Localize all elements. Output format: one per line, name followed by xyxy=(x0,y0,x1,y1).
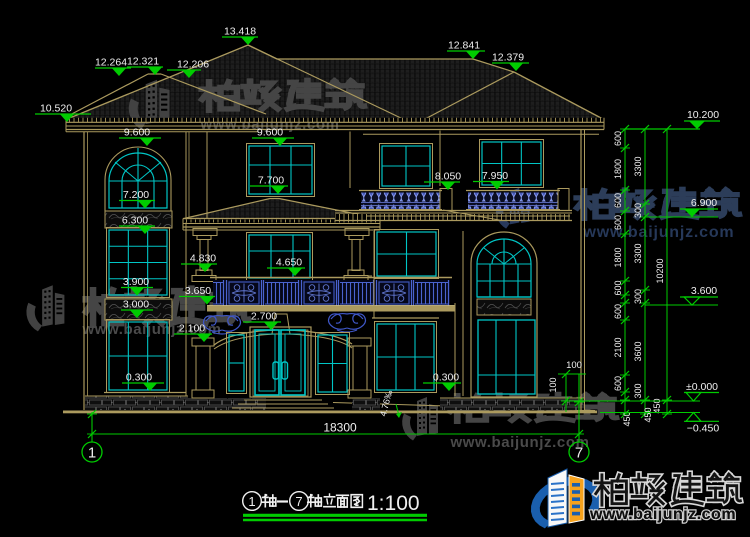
svg-text:12.379: 12.379 xyxy=(492,52,524,64)
svg-text:600: 600 xyxy=(613,280,623,295)
svg-text:9.600: 9.600 xyxy=(124,127,150,139)
svg-text:3.600: 3.600 xyxy=(691,285,717,297)
svg-text:0.300: 0.300 xyxy=(126,372,152,384)
svg-text:600: 600 xyxy=(613,215,623,230)
svg-text:2100: 2100 xyxy=(613,337,623,357)
svg-text:600: 600 xyxy=(613,304,623,319)
svg-text:6.300: 6.300 xyxy=(122,215,148,227)
svg-text:7.700: 7.700 xyxy=(258,175,284,187)
svg-text:12.321: 12.321 xyxy=(127,56,159,68)
svg-text:6.900: 6.900 xyxy=(691,197,717,209)
svg-text:−0.450: −0.450 xyxy=(687,423,720,435)
svg-text:600: 600 xyxy=(613,131,623,146)
svg-text:300: 300 xyxy=(633,203,643,218)
svg-text:3300: 3300 xyxy=(633,243,643,263)
svg-text:12.841: 12.841 xyxy=(448,40,480,52)
svg-text:www.baijunjz.com: www.baijunjz.com xyxy=(589,506,736,523)
svg-text:8.050: 8.050 xyxy=(435,171,461,183)
svg-text:10200: 10200 xyxy=(655,258,665,283)
svg-text:±0.000: ±0.000 xyxy=(686,381,718,393)
svg-text:600: 600 xyxy=(613,193,623,208)
svg-text:7.950: 7.950 xyxy=(482,170,508,182)
svg-text:7: 7 xyxy=(575,445,583,462)
svg-text:1800: 1800 xyxy=(613,159,623,179)
svg-text:10.200: 10.200 xyxy=(687,109,719,121)
svg-text:3300: 3300 xyxy=(633,156,643,176)
svg-text:10.520: 10.520 xyxy=(40,103,72,115)
svg-text:100: 100 xyxy=(566,360,582,371)
svg-text:13.418: 13.418 xyxy=(224,26,256,38)
svg-text:2.700: 2.700 xyxy=(251,311,277,323)
svg-text:12.264: 12.264 xyxy=(95,57,127,69)
svg-text:3.650: 3.650 xyxy=(185,285,211,297)
svg-text:9.600: 9.600 xyxy=(257,127,283,139)
svg-text:100: 100 xyxy=(548,377,558,392)
svg-text:450: 450 xyxy=(622,411,632,426)
svg-text:www.baijunjz.com: www.baijunjz.com xyxy=(449,434,589,451)
svg-text:7.200: 7.200 xyxy=(123,189,149,201)
svg-text:3.000: 3.000 xyxy=(123,299,149,311)
svg-text:2.100: 2.100 xyxy=(179,323,205,335)
svg-text:600: 600 xyxy=(613,376,623,391)
svg-text:3600: 3600 xyxy=(633,341,643,361)
svg-text:18300: 18300 xyxy=(323,421,357,435)
svg-text:1: 1 xyxy=(88,445,96,462)
svg-text:300: 300 xyxy=(633,383,643,398)
svg-text:1: 1 xyxy=(248,494,255,509)
svg-text:4.650: 4.650 xyxy=(276,257,302,269)
svg-text:7: 7 xyxy=(295,494,302,509)
svg-text:www.baijunjz.com: www.baijunjz.com xyxy=(583,224,735,241)
svg-text:3.900: 3.900 xyxy=(123,276,149,288)
svg-text:1:100: 1:100 xyxy=(367,492,420,515)
svg-text:0.300: 0.300 xyxy=(433,372,459,384)
svg-text:300: 300 xyxy=(633,289,643,304)
svg-text:4.830: 4.830 xyxy=(190,253,216,265)
svg-text:1800: 1800 xyxy=(613,247,623,267)
svg-text:12.206: 12.206 xyxy=(177,59,209,71)
